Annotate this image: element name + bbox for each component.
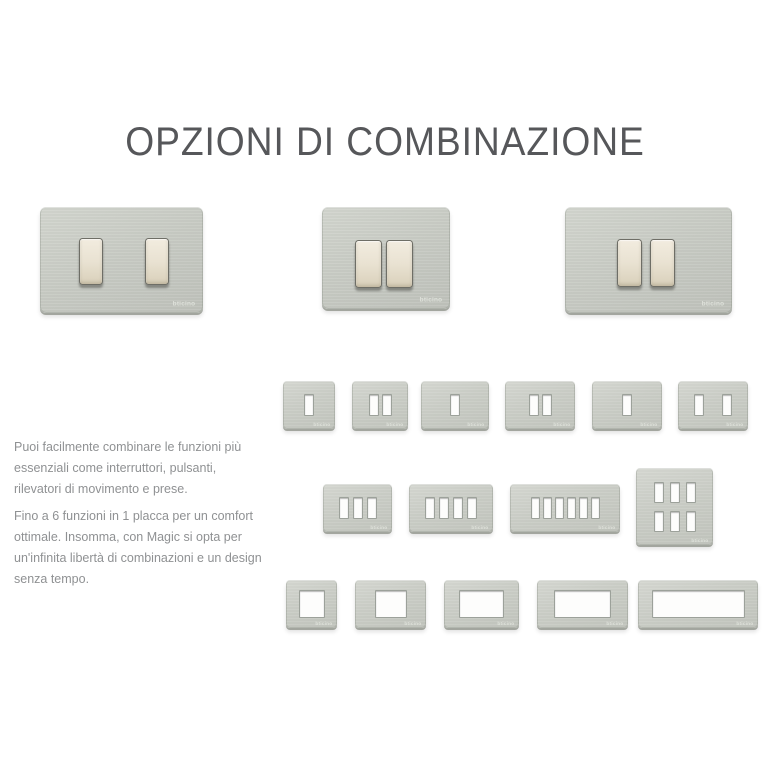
switch-rocker xyxy=(79,238,103,285)
window-row xyxy=(375,590,407,618)
window-row xyxy=(299,590,325,618)
module-window xyxy=(579,497,588,519)
switch-rocker xyxy=(355,240,382,288)
window-row xyxy=(694,394,732,416)
window-row xyxy=(654,482,696,503)
window-row xyxy=(531,497,600,519)
plate-open-4: bticino xyxy=(537,580,628,628)
bticino-logo: bticino xyxy=(419,296,442,303)
switch-rocker xyxy=(145,238,169,285)
plate-2-switches-adjacent-compact: bticino xyxy=(322,207,450,309)
module-window xyxy=(654,511,664,532)
module-window xyxy=(567,497,576,519)
plate-6-module-grid: bticino xyxy=(636,468,713,545)
module-window xyxy=(670,482,680,503)
module-window xyxy=(439,497,449,519)
module-window xyxy=(529,394,539,416)
module-window xyxy=(304,394,314,416)
module-window xyxy=(591,497,600,519)
bticino-logo: bticino xyxy=(701,300,724,307)
module-windows xyxy=(421,381,489,429)
module-window xyxy=(459,590,504,618)
module-windows xyxy=(510,484,620,532)
plate-2-module-separated: bticino xyxy=(678,381,748,429)
module-window xyxy=(375,590,407,618)
intro-paragraph-2: Fino a 6 funzioni in 1 placca per un com… xyxy=(14,506,314,590)
module-window xyxy=(367,497,377,519)
plate-4-module: bticino xyxy=(409,484,493,532)
module-window xyxy=(467,497,477,519)
module-window xyxy=(686,482,696,503)
intro-paragraph-1: Puoi facilmente combinare le funzioni pi… xyxy=(14,437,314,500)
plate-6-module-row: bticino xyxy=(510,484,620,532)
window-row xyxy=(304,394,314,416)
window-row xyxy=(622,394,632,416)
module-windows xyxy=(592,381,662,429)
page-title: OPZIONI DI COMBINAZIONE xyxy=(27,120,743,165)
plate-2-module-square: bticino xyxy=(352,381,408,429)
module-window xyxy=(722,394,732,416)
module-window xyxy=(425,497,435,519)
module-window xyxy=(369,394,379,416)
module-windows xyxy=(286,580,337,628)
module-windows xyxy=(355,580,426,628)
module-window xyxy=(670,511,680,532)
plate-1-module-wide: bticino xyxy=(592,381,662,429)
module-window xyxy=(339,497,349,519)
page-root: OPZIONI DI COMBINAZIONE Puoi facilmente … xyxy=(0,0,770,763)
plate-3-module: bticino xyxy=(323,484,392,532)
module-windows xyxy=(283,381,335,429)
plate-open-2: bticino xyxy=(355,580,426,628)
plate-open-1: bticino xyxy=(286,580,337,628)
plate-open-6: bticino xyxy=(638,580,758,628)
window-row xyxy=(529,394,552,416)
module-window xyxy=(450,394,460,416)
module-window xyxy=(652,590,745,618)
window-row xyxy=(369,394,392,416)
module-windows xyxy=(638,580,758,628)
module-window xyxy=(694,394,704,416)
module-window xyxy=(542,394,552,416)
plate-open-3: bticino xyxy=(444,580,519,628)
window-row xyxy=(652,590,745,618)
module-windows xyxy=(444,580,519,628)
module-window xyxy=(555,497,564,519)
module-windows xyxy=(636,468,713,545)
window-row xyxy=(459,590,504,618)
module-windows xyxy=(323,484,392,532)
module-window xyxy=(543,497,552,519)
plate-2-module-rect: bticino xyxy=(505,381,575,429)
window-row xyxy=(654,511,696,532)
plate-1-module-rect: bticino xyxy=(421,381,489,429)
module-window xyxy=(382,394,392,416)
module-window xyxy=(554,590,611,618)
module-window xyxy=(654,482,664,503)
module-windows xyxy=(352,381,408,429)
plate-1-module-square: bticino xyxy=(283,381,335,429)
switch-rocker xyxy=(617,239,642,287)
intro-text: Puoi facilmente combinare le funzioni pi… xyxy=(14,437,314,596)
module-windows xyxy=(505,381,575,429)
switch-rocker xyxy=(386,240,413,288)
switch-rocker xyxy=(650,239,675,287)
bticino-logo: bticino xyxy=(172,300,195,307)
module-windows xyxy=(409,484,493,532)
module-window xyxy=(686,511,696,532)
module-window xyxy=(622,394,632,416)
module-window xyxy=(453,497,463,519)
module-window xyxy=(531,497,540,519)
window-row xyxy=(554,590,611,618)
window-row xyxy=(425,497,477,519)
module-windows xyxy=(678,381,748,429)
window-row xyxy=(450,394,460,416)
module-window xyxy=(353,497,363,519)
module-windows xyxy=(537,580,628,628)
module-window xyxy=(299,590,325,618)
plate-2-switches-spaced: bticino xyxy=(40,207,203,313)
window-row xyxy=(339,497,377,519)
plate-2-switches-adjacent-wide: bticino xyxy=(565,207,732,313)
